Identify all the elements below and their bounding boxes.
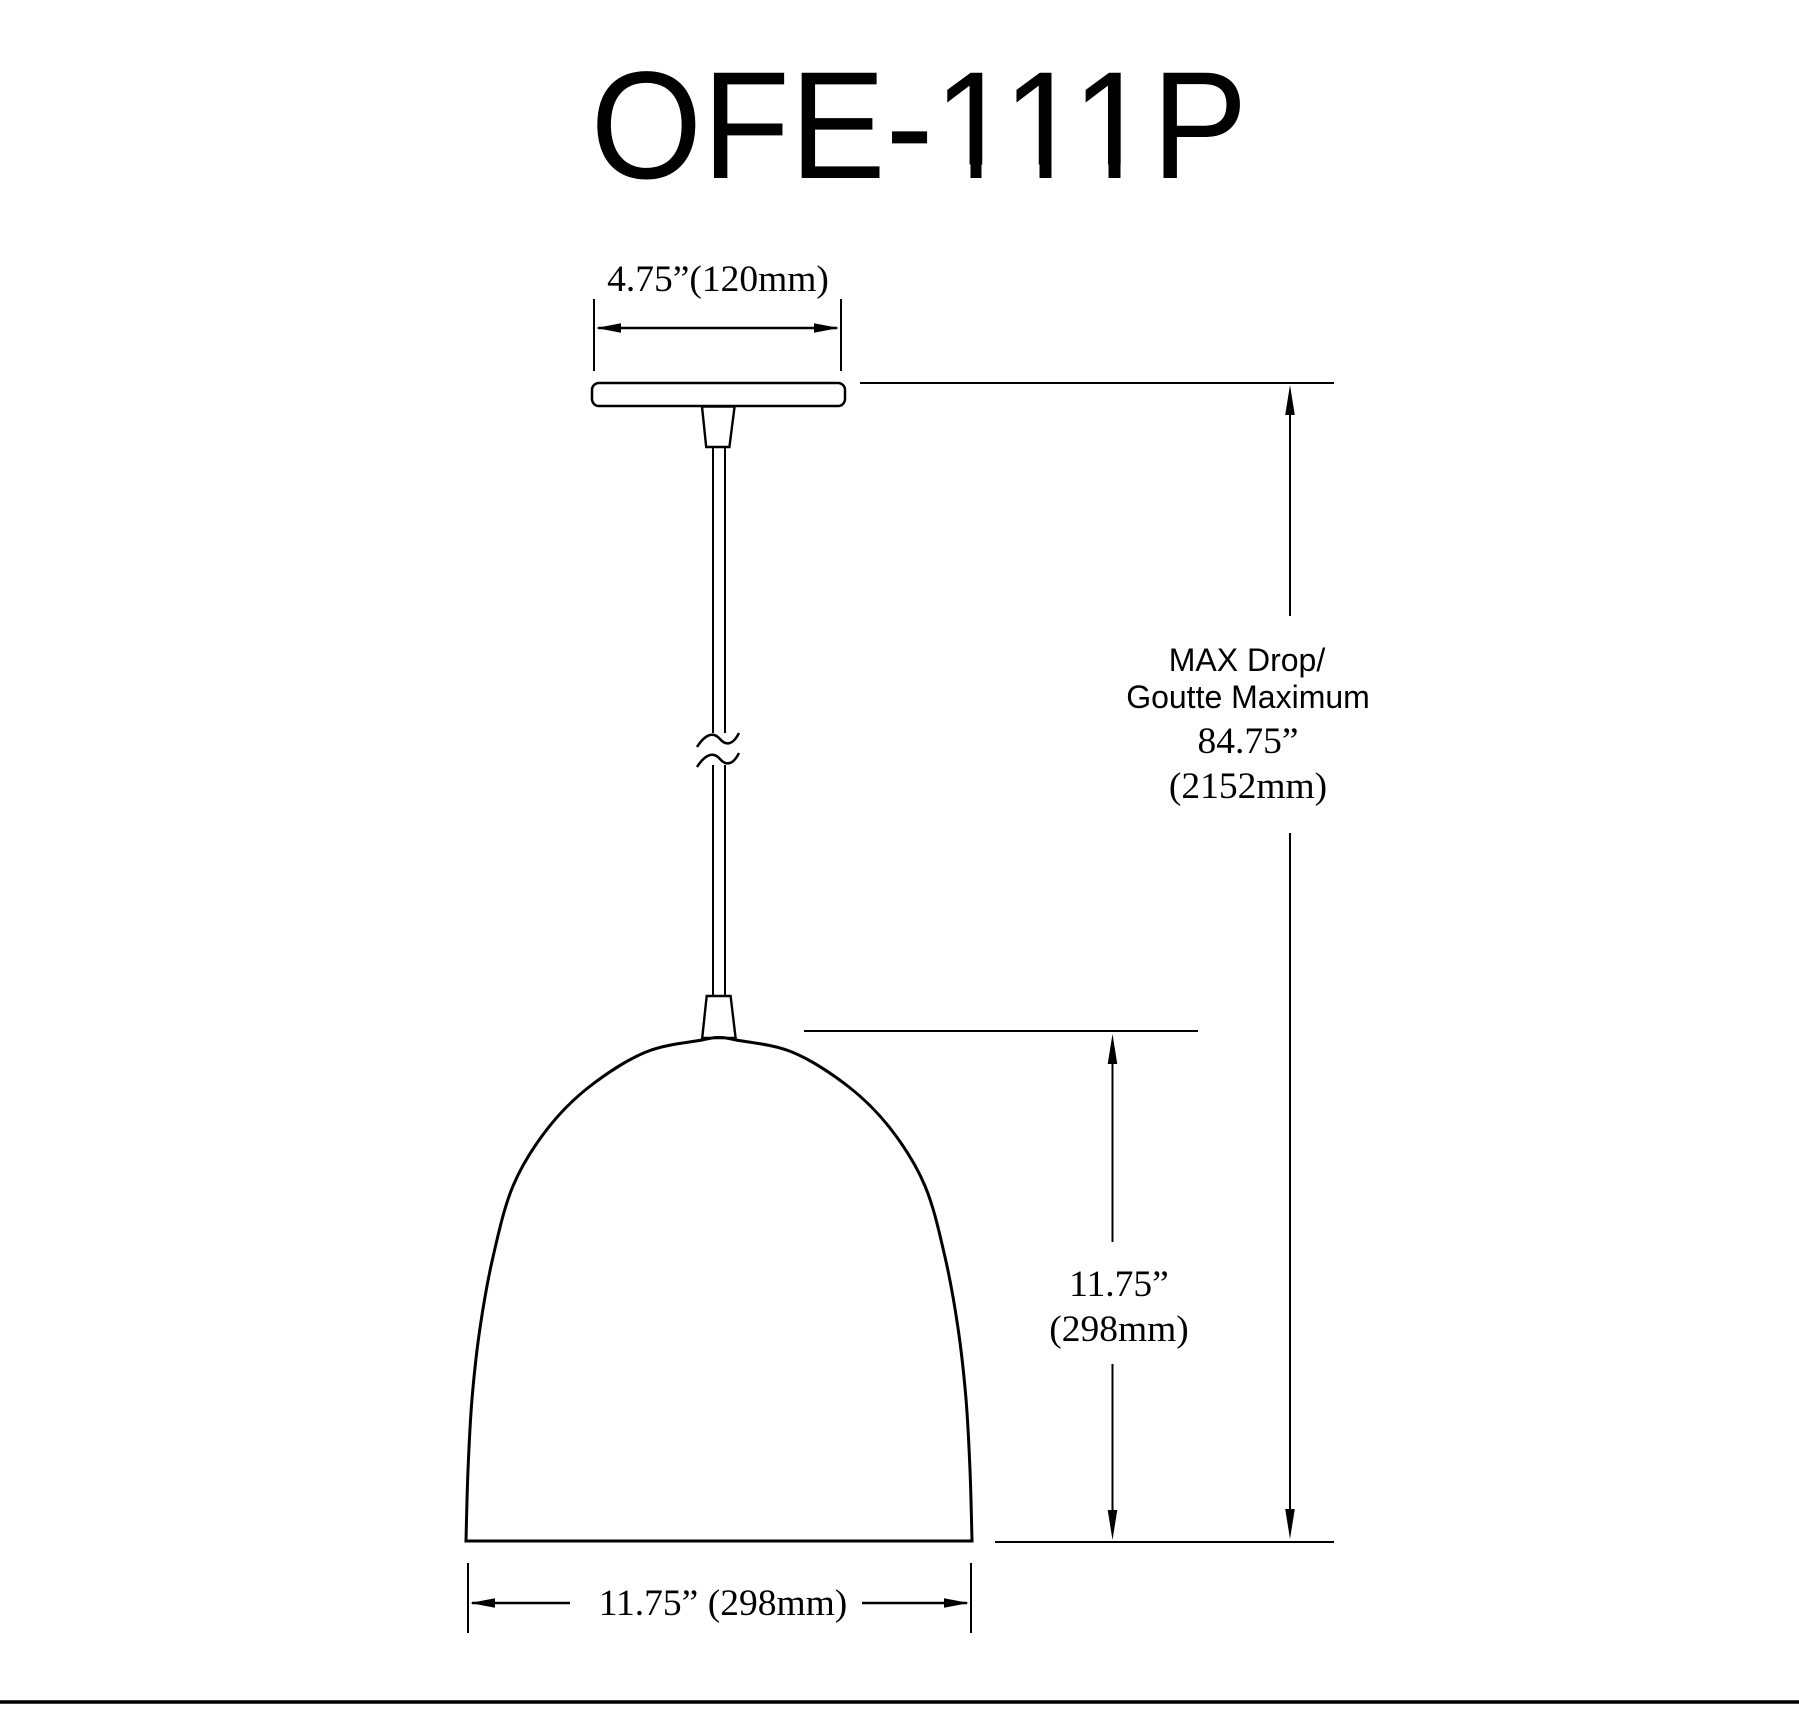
- svg-text:84.75”: 84.75”: [1197, 721, 1298, 762]
- svg-text:11.75” (298mm): 11.75” (298mm): [599, 1583, 848, 1624]
- svg-text:11.75”: 11.75”: [1069, 1264, 1169, 1305]
- svg-text:(2152mm): (2152mm): [1169, 766, 1327, 807]
- svg-text:OFE-111P: OFE-111P: [591, 40, 1248, 211]
- svg-text:Goutte Maximum: Goutte Maximum: [1126, 679, 1370, 715]
- svg-text:4.75”(120mm): 4.75”(120mm): [607, 259, 829, 300]
- svg-text:MAX Drop/: MAX Drop/: [1169, 642, 1326, 678]
- svg-text:(298mm): (298mm): [1049, 1309, 1189, 1350]
